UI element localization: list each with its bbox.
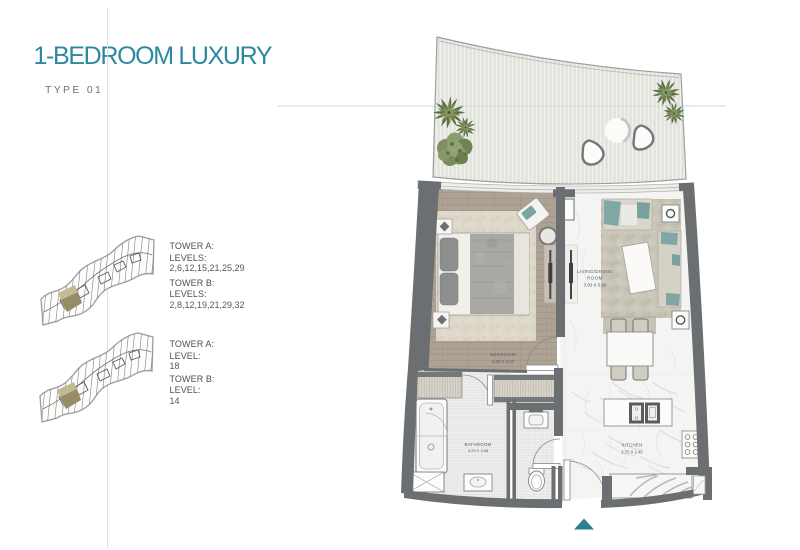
svg-text:3.65 X 5.00: 3.65 X 5.00 (492, 359, 515, 364)
svg-text:2.70 X 2.40: 2.70 X 2.40 (621, 450, 643, 455)
svg-text:BATHROOM: BATHROOM (465, 442, 492, 447)
svg-text:BEDROOM: BEDROOM (490, 352, 516, 357)
svg-text:3.93 X 5.90: 3.93 X 5.90 (584, 283, 607, 288)
svg-text:4.29 X 3.08: 4.29 X 3.08 (468, 448, 489, 453)
svg-text:LIVING/DINING: LIVING/DINING (577, 269, 613, 274)
svg-text:ROOM: ROOM (587, 276, 603, 281)
svg-text:KITCHEN: KITCHEN (622, 443, 643, 448)
